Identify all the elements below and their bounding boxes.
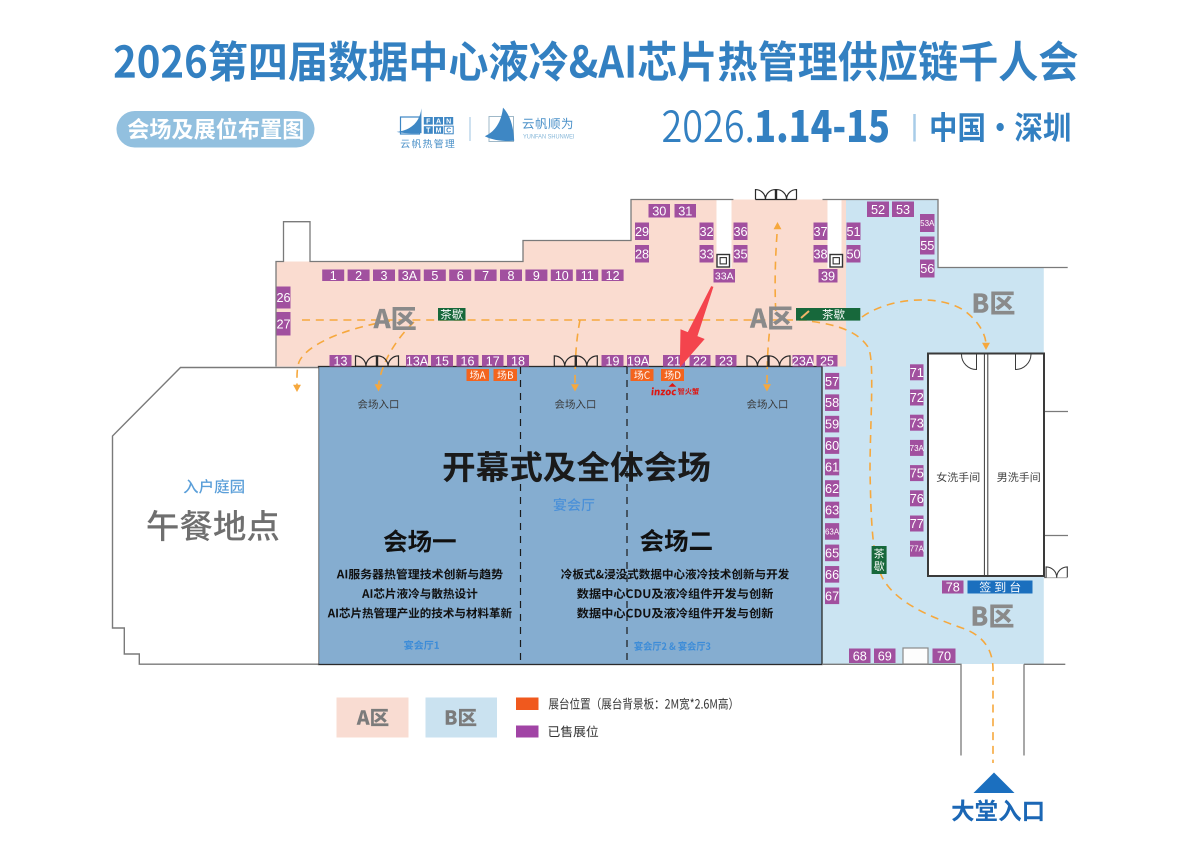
- svg-text:17: 17: [486, 354, 500, 368]
- svg-text:72: 72: [910, 391, 924, 405]
- svg-text:13: 13: [334, 354, 348, 368]
- svg-text:1: 1: [330, 269, 337, 283]
- svg-text:67: 67: [825, 589, 839, 603]
- svg-text:35: 35: [733, 247, 747, 261]
- svg-text:38: 38: [813, 247, 827, 261]
- svg-text:60: 60: [825, 439, 839, 453]
- svg-text:2: 2: [355, 269, 362, 283]
- svg-text:22: 22: [693, 354, 707, 368]
- svg-text:16: 16: [461, 354, 475, 368]
- svg-text:73: 73: [910, 416, 924, 430]
- svg-text:62: 62: [825, 482, 839, 496]
- svg-text:19: 19: [606, 354, 620, 368]
- svg-text:61: 61: [825, 461, 839, 475]
- svg-text:C: C: [446, 128, 451, 135]
- svg-text:77: 77: [910, 517, 924, 531]
- svg-text:56: 56: [920, 262, 934, 276]
- svg-text:29: 29: [635, 225, 649, 239]
- svg-text:66: 66: [825, 568, 839, 582]
- svg-text:3A: 3A: [402, 269, 418, 283]
- svg-text:6: 6: [457, 269, 464, 283]
- svg-text:57: 57: [825, 375, 839, 389]
- svg-text:36: 36: [733, 225, 747, 239]
- svg-text:73A: 73A: [910, 444, 925, 453]
- svg-text:15: 15: [435, 354, 449, 368]
- svg-text:68: 68: [853, 649, 867, 663]
- svg-text:39: 39: [821, 269, 835, 283]
- svg-text:28: 28: [635, 247, 649, 261]
- svg-text:19A: 19A: [627, 354, 650, 368]
- svg-text:53: 53: [896, 203, 910, 217]
- svg-text:37: 37: [813, 225, 827, 239]
- svg-text:53A: 53A: [920, 219, 935, 228]
- svg-text:52: 52: [871, 203, 885, 217]
- svg-text:59: 59: [825, 418, 839, 432]
- svg-text:71: 71: [910, 366, 924, 380]
- svg-text:7: 7: [482, 269, 489, 283]
- svg-text:32: 32: [699, 225, 713, 239]
- svg-text:27: 27: [276, 317, 290, 331]
- svg-text:70: 70: [937, 649, 951, 663]
- svg-text:23: 23: [719, 354, 733, 368]
- svg-text:63A: 63A: [825, 527, 840, 536]
- svg-text:10: 10: [555, 269, 569, 283]
- svg-text:63: 63: [825, 504, 839, 518]
- svg-text:3: 3: [381, 269, 388, 283]
- svg-text:18: 18: [511, 354, 525, 368]
- svg-text:33: 33: [699, 247, 713, 261]
- svg-text:12: 12: [606, 269, 620, 283]
- svg-text:33A: 33A: [715, 271, 734, 283]
- svg-text:9: 9: [533, 269, 540, 283]
- svg-text:23A: 23A: [792, 354, 815, 368]
- svg-text:75: 75: [910, 467, 924, 481]
- svg-text:N: N: [446, 118, 451, 125]
- svg-text:YUNFAN SHUNWEI: YUNFAN SHUNWEI: [523, 134, 575, 141]
- svg-text:31: 31: [678, 204, 692, 218]
- svg-text:55: 55: [920, 239, 934, 253]
- svg-text:51: 51: [846, 225, 860, 239]
- svg-text:8: 8: [508, 269, 515, 283]
- svg-text:30: 30: [652, 204, 666, 218]
- svg-text:58: 58: [825, 396, 839, 410]
- svg-text:M: M: [436, 128, 442, 135]
- svg-text:76: 76: [910, 492, 924, 506]
- svg-text:F: F: [426, 118, 431, 125]
- svg-text:21: 21: [667, 354, 681, 368]
- svg-text:11: 11: [581, 269, 594, 283]
- svg-text:69: 69: [878, 649, 892, 663]
- svg-text:5: 5: [431, 269, 438, 283]
- svg-text:78: 78: [946, 581, 960, 595]
- svg-text:50: 50: [846, 247, 860, 261]
- svg-text:25: 25: [820, 354, 834, 368]
- svg-text:26: 26: [276, 291, 290, 305]
- svg-text:A: A: [436, 118, 441, 125]
- svg-text:77A: 77A: [910, 545, 925, 554]
- svg-text:T: T: [426, 128, 431, 135]
- svg-text:13A: 13A: [406, 354, 429, 368]
- svg-text:65: 65: [825, 546, 839, 560]
